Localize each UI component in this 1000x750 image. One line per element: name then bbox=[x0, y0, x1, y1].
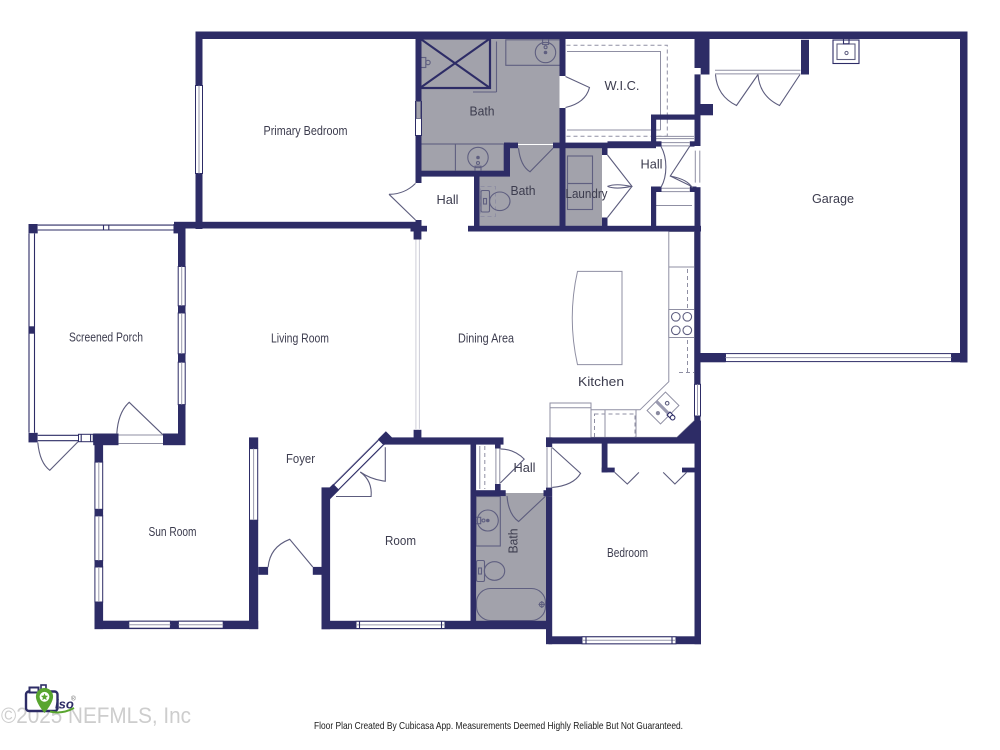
svg-text:Hall: Hall bbox=[514, 460, 536, 475]
svg-text:®: ® bbox=[71, 695, 76, 703]
svg-text:Kitchen: Kitchen bbox=[578, 374, 624, 389]
svg-text:Bedroom: Bedroom bbox=[607, 545, 648, 560]
svg-text:Garage: Garage bbox=[812, 191, 854, 206]
svg-text:W.I.C.: W.I.C. bbox=[605, 78, 640, 93]
svg-text:Living Room: Living Room bbox=[271, 331, 329, 346]
svg-text:Foyer: Foyer bbox=[286, 451, 316, 466]
svg-text:Hall: Hall bbox=[437, 192, 459, 207]
svg-text:Room: Room bbox=[385, 533, 416, 548]
svg-text:Floor Plan Created By Cubicasa: Floor Plan Created By Cubicasa App. Meas… bbox=[314, 720, 683, 732]
svg-text:Primary Bedroom: Primary Bedroom bbox=[264, 123, 348, 138]
svg-text:Screened Porch: Screened Porch bbox=[69, 330, 143, 345]
svg-text:Bath: Bath bbox=[470, 104, 495, 119]
svg-text:Bath: Bath bbox=[506, 529, 521, 554]
svg-text:Dining Area: Dining Area bbox=[458, 331, 515, 346]
svg-text:Hall: Hall bbox=[641, 157, 663, 172]
svg-text:Bath: Bath bbox=[511, 183, 536, 198]
svg-text:Sun Room: Sun Room bbox=[149, 524, 197, 539]
svg-text:Laundry: Laundry bbox=[566, 186, 609, 201]
